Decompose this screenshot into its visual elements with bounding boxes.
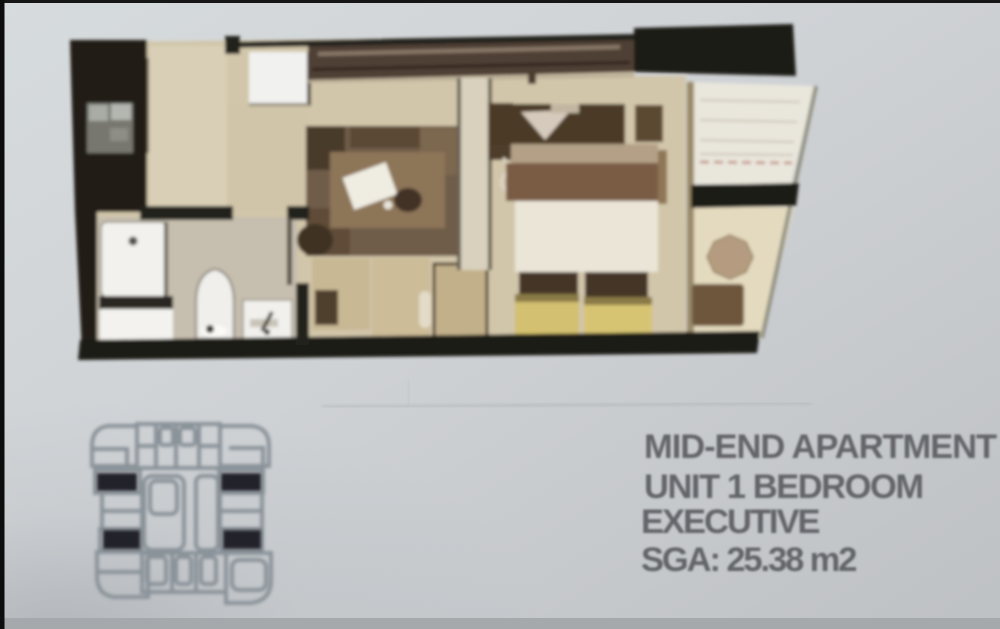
svg-text:SGA: 25.38 m2: SGA: 25.38 m2 (641, 541, 856, 579)
svg-text:EXECUTIVE: EXECUTIVE (641, 503, 820, 541)
svg-text:MID-END APARTMENT: MID-END APARTMENT (644, 428, 997, 466)
svg-text:UNIT 1 BEDROOM: UNIT 1 BEDROOM (644, 468, 923, 506)
